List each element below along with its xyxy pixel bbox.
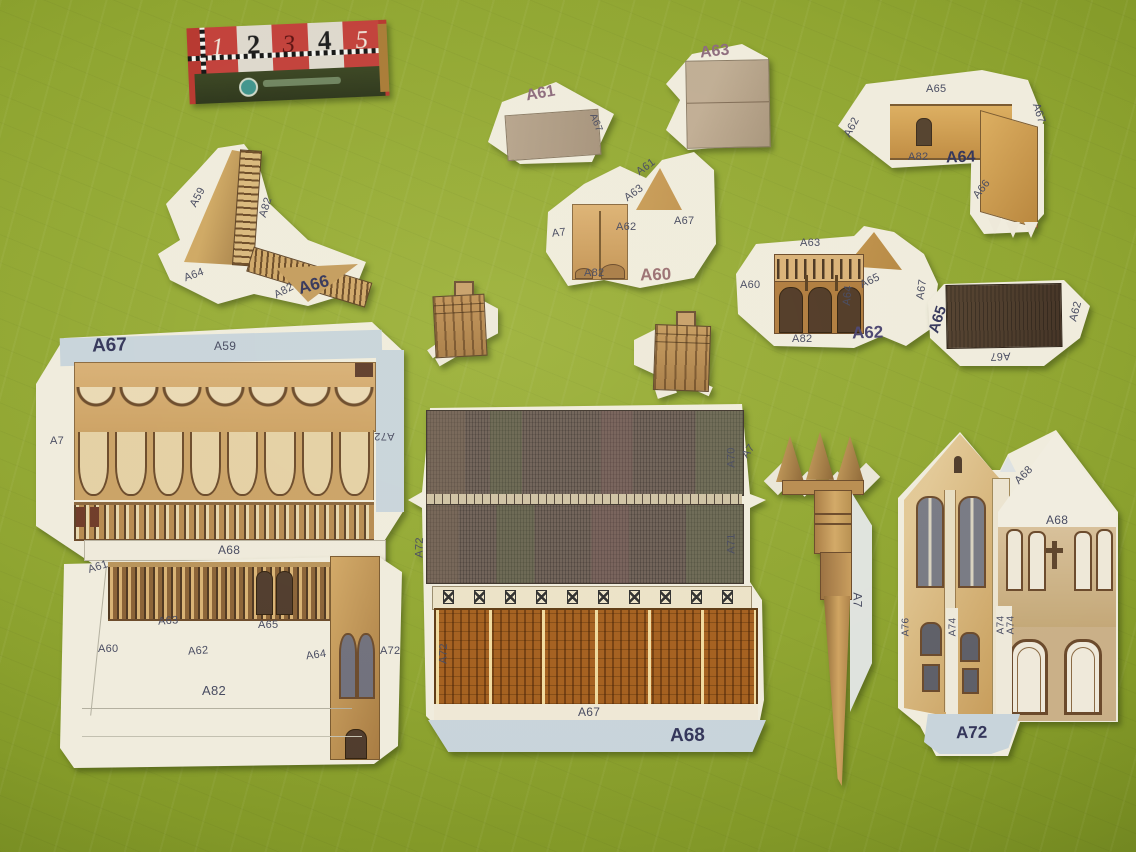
cross-horizontal [1046,548,1063,553]
lancet-window [916,496,944,588]
flap-label: A74 [948,618,958,637]
small-arcade-strip [775,255,863,282]
large-arch [227,432,258,496]
piece-label: A68 [670,726,705,746]
piece-a64: A65 A62 A82 A64 A67 A66 [832,64,1046,234]
large-arch [78,432,109,496]
piece-a65: A65 A62 A67 [924,274,1090,374]
large-arch [153,432,184,496]
large-arch [115,432,146,496]
arch-inner-line [1017,647,1041,712]
flap-label: A76 [901,618,911,637]
flap-label: A82 [584,268,604,279]
flap-label: A60 [98,644,118,655]
x-mark [629,590,640,604]
piece-label: A62 [852,323,884,341]
large-arch [264,432,295,496]
roof-panel-upper [426,410,744,496]
small-rect-window [962,668,979,694]
flap-label: A82 [202,684,226,697]
turret-wall-art [432,294,487,359]
piece-a62: A63 A60 A82 A64 A65 A67 A62 [734,218,938,350]
piece-a60: A7 A61 A63 A62 A67 A82 A60 [544,148,716,290]
fold-line [82,736,362,737]
matchbox-blurred-text [263,77,341,87]
ruler-cell-3: 3 [272,23,310,71]
flap-label: A72 [438,643,450,664]
photo-papercraft-kit: 1 2 3 4 5 A61 A67 A63 [0,0,1136,852]
facade-upper-band-art [74,362,376,432]
large-arch [190,432,221,496]
flap-label: A7 [852,592,864,607]
tower-window [339,633,357,699]
piece-a72-facade: A68 A68 A76 A74 A74 A74 A72 [896,426,1124,760]
x-mark [567,590,578,604]
flap-label: A65 [926,84,946,95]
arch-inner-line [1071,647,1095,712]
band-line [434,311,484,315]
flap-label: A71 [727,533,738,553]
small-turret-piece-1 [426,281,502,367]
tall-window [1028,531,1046,591]
facade-arcade-strip [74,502,374,541]
spire-shaft-step [820,552,852,600]
flap-label: A63 [800,238,820,249]
small-arch-window [920,622,942,656]
band-line [656,341,710,344]
matchbox-end-cap [377,24,389,92]
ruler-cell-4: 4 [307,22,345,70]
flap-label: A67 [990,350,1011,362]
flap-label: A62 [616,222,636,233]
flap-label: A72 [414,537,426,558]
x-mark [691,590,702,604]
right-wall-lower [998,627,1116,721]
small-turret-piece-2 [634,311,714,401]
arched-window [916,118,932,146]
band-line [656,333,710,336]
chimney-pole [835,275,838,291]
tower-door [345,729,367,759]
x-mark [474,590,485,604]
lancet-window [958,496,986,588]
chimney-pole [805,275,808,291]
large-arch [779,287,803,333]
dark-red-block [76,507,85,527]
matchbox-ruler: 1 2 3 4 5 [186,20,389,105]
right-wall-upper [998,527,1116,627]
tower-window [357,633,375,699]
small-rect-window [922,664,940,692]
pinnacle-triangle [806,432,834,484]
tower-art [330,556,380,760]
cross-vertical [1052,541,1057,569]
x-mark [536,590,547,604]
gable-slit-window [954,456,962,473]
large-dark-arch [256,571,273,615]
fold-line [82,708,352,709]
piece-a7-spire: A7 [770,426,876,788]
pinnacle-triangle [836,436,864,486]
dark-red-block [90,507,99,527]
dark-corner-block [355,363,373,377]
x-mark [505,590,516,604]
small-arch-window [960,632,980,662]
flap-label: A67 [674,216,694,227]
piece-label: A72 [956,724,987,742]
piece-label: A67 [92,335,128,355]
flap-label: A7 [551,227,566,239]
large-arch-window [1064,639,1102,715]
x-mark [660,590,671,604]
large-arch [339,432,370,496]
flap-label: A67 [578,706,600,718]
piece-a82-base: A61 A60 A63 A62 A65 A64 A82 A72 [58,550,414,768]
facade-large-arches-row [74,430,374,500]
flap-label: A82 [908,152,928,163]
dense-arcade-art [108,562,348,621]
piece-a63-wall-art [685,59,771,148]
flap-label: A7 [50,436,64,447]
flap-label: A60 [740,280,760,291]
roof-ridge-strip [426,494,742,504]
piece-label: A60 [640,265,672,283]
turret-wall-art [653,324,711,392]
flap-label: A63 [158,615,179,627]
flap-label: A62 [188,645,209,657]
x-mark [598,590,609,604]
piece-a68-bottom-flap [428,720,766,752]
flap-label: A82 [792,334,812,345]
piece-a66: A59 A82 A64 A82 A66 [158,144,366,306]
flap-label: A68 [1046,514,1068,526]
matchbox-logo-circle [239,77,259,97]
dark-roof-art [945,283,1062,349]
x-mark [443,590,454,604]
tall-window [1096,529,1113,591]
x-mark [722,590,733,604]
flap-label: A64 [842,285,855,306]
band-line [815,513,851,515]
ruler-cell-5: 5 [343,20,381,68]
pinnacle-triangle [776,436,804,486]
piece-a64-arm-art [980,110,1038,229]
band-line [815,523,851,525]
flap-label: A74 [1006,616,1016,635]
flap-label: A70 [727,447,738,467]
dome-arch [601,264,625,279]
roof-panel-lower [426,504,744,584]
fold-line [687,102,769,104]
piece-a63: A63 [664,44,774,150]
small-arcade-columns [777,259,861,279]
piece-label: A63 [699,43,730,62]
spire-blade [822,596,852,786]
piece-label: A64 [946,149,976,166]
scallop-arches [75,387,375,431]
band-line [434,303,484,307]
orange-panel-wall [434,608,758,706]
x-mark-strip [432,586,752,610]
spire-neck [814,490,852,554]
flap-label: A59 [214,340,236,352]
tall-window [1074,531,1092,591]
large-arch-window [1010,639,1048,715]
large-arch [808,287,832,333]
large-dark-arch [276,571,293,615]
matchbox-ruler-strip: 1 2 3 4 5 [200,20,380,74]
tall-window [1006,529,1023,591]
large-arch [302,432,333,496]
flap-label: A65 [258,620,278,631]
flap-label: A72 [374,430,394,441]
piece-a68: A70 A7 A71 A72 A72 A67 A68 [402,400,766,756]
piece-a67: A67 A59 A7 A72 A68 [36,310,404,566]
flap-label: A72 [380,646,400,657]
ruler-cell-2: 2 [236,25,274,73]
